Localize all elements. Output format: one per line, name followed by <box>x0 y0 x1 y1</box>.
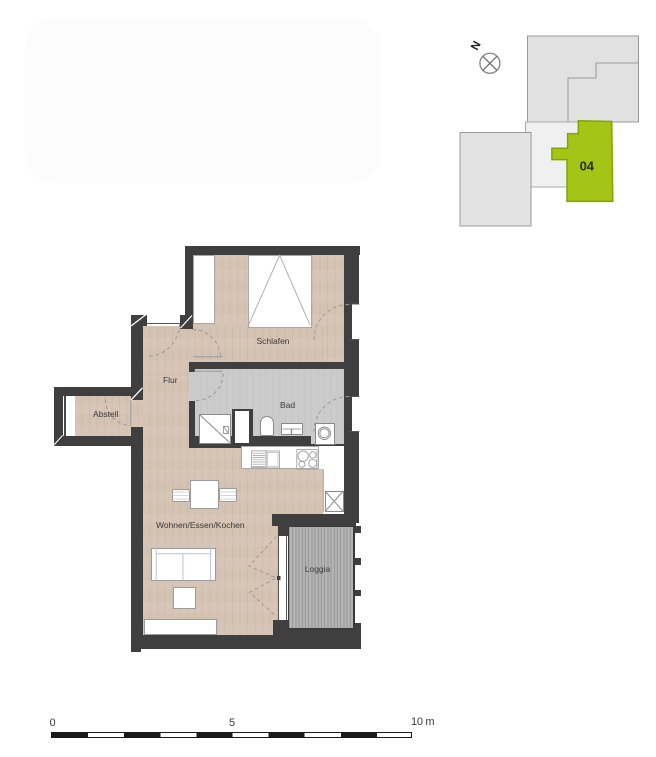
svg-text:N: N <box>469 39 483 52</box>
svg-text:04: 04 <box>580 159 595 174</box>
